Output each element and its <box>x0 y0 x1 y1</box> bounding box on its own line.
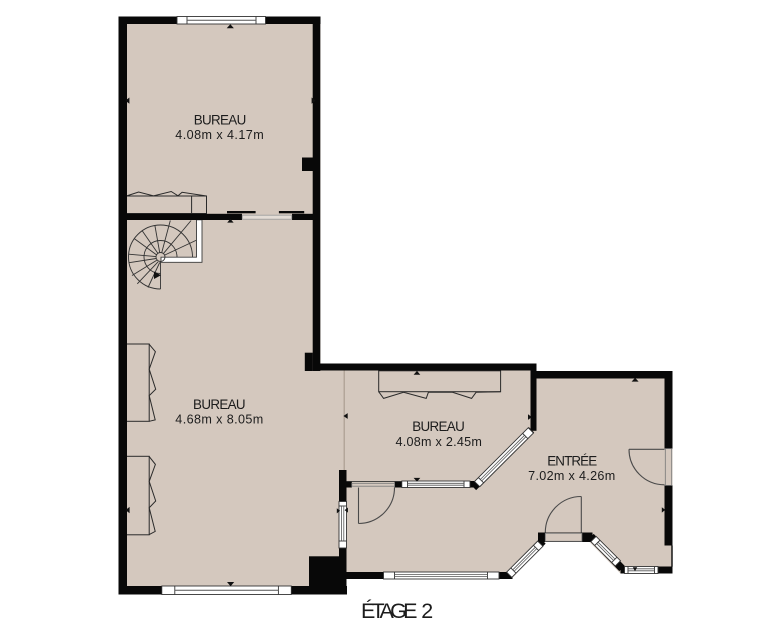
svg-text:ÉTAGE2: ÉTAGE2 <box>361 598 433 623</box>
svg-text:BUREAU: BUREAU <box>194 113 247 128</box>
svg-text:4.68m x 8.05m: 4.68m x 8.05m <box>175 412 263 426</box>
svg-text:7.02m x 4.26m: 7.02m x 4.26m <box>528 469 615 483</box>
svg-text:4.08m x 4.17m: 4.08m x 4.17m <box>175 128 263 142</box>
svg-text:ENTRÉE: ENTRÉE <box>547 453 597 468</box>
svg-text:4.08m x 2.45m: 4.08m x 2.45m <box>396 435 482 449</box>
svg-text:BUREAU: BUREAU <box>193 397 245 412</box>
svg-text:BUREAU: BUREAU <box>412 419 465 434</box>
